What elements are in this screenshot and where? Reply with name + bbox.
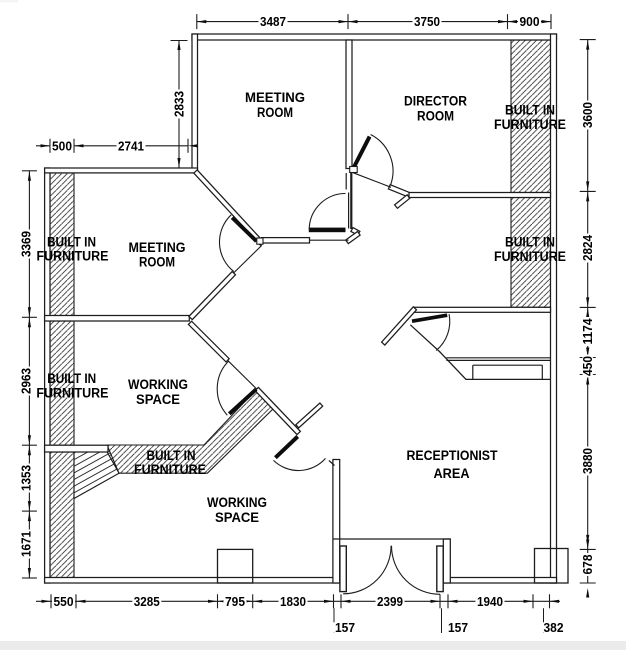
svg-text:AREA: AREA xyxy=(434,466,470,481)
svg-text:2963: 2963 xyxy=(18,368,33,394)
svg-text:2399: 2399 xyxy=(377,594,403,609)
svg-text:1174: 1174 xyxy=(580,318,595,345)
svg-text:1671: 1671 xyxy=(18,531,33,557)
svg-text:382: 382 xyxy=(544,620,564,635)
svg-text:2833: 2833 xyxy=(172,91,187,117)
svg-text:RECEPTIONIST: RECEPTIONIST xyxy=(407,448,499,463)
svg-text:FURNITURE: FURNITURE xyxy=(494,117,566,132)
svg-text:WORKING: WORKING xyxy=(128,377,188,392)
svg-text:1353: 1353 xyxy=(18,465,33,491)
svg-text:WORKING: WORKING xyxy=(207,495,267,510)
svg-text:2824: 2824 xyxy=(580,234,595,261)
svg-text:BUILT IN: BUILT IN xyxy=(147,448,196,463)
svg-text:3880: 3880 xyxy=(580,448,595,474)
svg-text:3285: 3285 xyxy=(134,594,160,609)
svg-text:BUILT IN: BUILT IN xyxy=(505,235,555,250)
svg-text:678: 678 xyxy=(580,555,595,575)
svg-text:157: 157 xyxy=(335,620,355,635)
svg-text:795: 795 xyxy=(225,594,245,609)
svg-text:450: 450 xyxy=(580,356,595,376)
svg-text:3369: 3369 xyxy=(18,231,33,257)
svg-text:157: 157 xyxy=(448,620,468,635)
svg-text:BUILT IN: BUILT IN xyxy=(505,103,555,118)
svg-text:500: 500 xyxy=(52,138,72,153)
svg-text:ROOM: ROOM xyxy=(139,255,175,270)
svg-text:FURNITURE: FURNITURE xyxy=(494,249,566,264)
svg-text:1940: 1940 xyxy=(477,594,503,609)
svg-text:ROOM: ROOM xyxy=(417,108,454,123)
svg-text:SPACE: SPACE xyxy=(136,392,180,407)
svg-text:FURNITURE: FURNITURE xyxy=(37,249,109,264)
svg-text:900: 900 xyxy=(520,14,540,29)
svg-text:550: 550 xyxy=(54,594,74,609)
svg-text:BUILT IN: BUILT IN xyxy=(47,235,96,250)
svg-text:3600: 3600 xyxy=(580,102,595,128)
svg-text:SPACE: SPACE xyxy=(215,510,259,525)
svg-text:BUILT IN: BUILT IN xyxy=(47,371,96,386)
svg-text:MEETING: MEETING xyxy=(245,90,305,105)
svg-text:3750: 3750 xyxy=(414,14,440,29)
svg-text:FURNITURE: FURNITURE xyxy=(36,386,108,401)
svg-text:MEETING: MEETING xyxy=(129,240,186,255)
svg-text:FURNITURE: FURNITURE xyxy=(134,462,206,477)
svg-text:2741: 2741 xyxy=(118,138,144,153)
svg-text:DIRECTOR: DIRECTOR xyxy=(404,93,467,108)
svg-text:ROOM: ROOM xyxy=(257,105,293,120)
svg-text:1830: 1830 xyxy=(280,594,306,609)
svg-text:3487: 3487 xyxy=(260,14,286,29)
